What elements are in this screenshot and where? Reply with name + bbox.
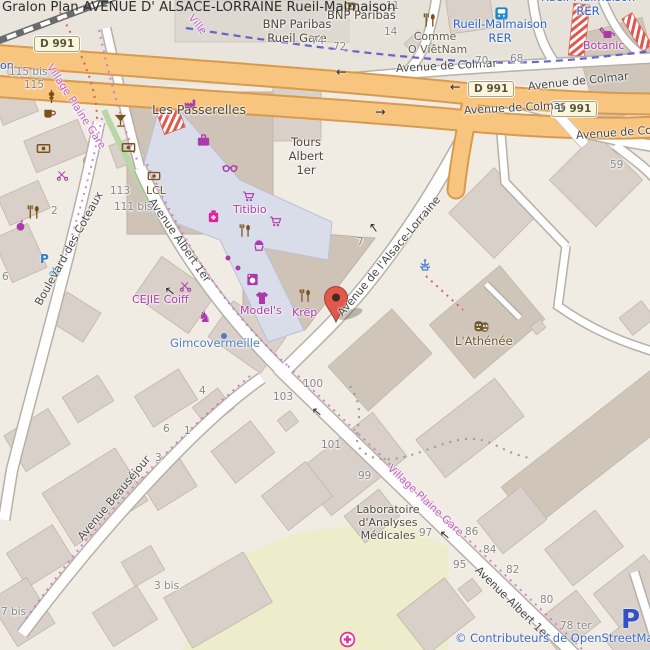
house-number: 99 — [358, 470, 371, 483]
house-number: 6 — [2, 271, 9, 284]
poi-label-titibio: Titibio — [233, 203, 267, 216]
house-number: 101 — [321, 439, 341, 452]
bicycle-parking-label: P — [40, 252, 49, 266]
oneway-arrow: ← — [450, 79, 460, 94]
poi-dot — [236, 266, 241, 271]
page-title: Gralon Plan AVENUE D' ALSACE-LORRAINE Ru… — [2, 0, 396, 15]
house-number: 113 — [110, 185, 130, 198]
poi-label-lab-line2: d'Analyses — [350, 516, 426, 529]
house-number: 70 — [475, 55, 488, 68]
house-number: 84 — [483, 544, 496, 557]
station-label-line1: Rueil-Malmaison — [452, 18, 548, 32]
house-number: 103 — [273, 391, 293, 404]
oneway-arrow: → — [375, 104, 385, 119]
house-number: 7 — [357, 236, 364, 249]
poi-dot — [226, 256, 231, 261]
poi-label-les-passerelles: Les Passerelles — [152, 102, 246, 117]
map-base-layer — [0, 0, 650, 650]
poi-label-cejie-coiff: CEJIE Coiff — [132, 293, 189, 306]
station-label-partial-line2: RER — [540, 5, 636, 19]
house-number: 86 — [465, 526, 478, 539]
poi-label-athenee: L'Athénée — [455, 335, 513, 349]
house-number: 1 — [184, 425, 191, 438]
house-number: 80 — [540, 594, 553, 607]
house-number: 59 — [610, 159, 623, 172]
poi-label-lcl: LCL — [146, 184, 166, 197]
laundry-icon — [247, 274, 257, 285]
map-canvas[interactable]: D 991 D 991 D 991 Avenue de Colmar Avenu… — [0, 0, 650, 650]
house-number: 6 — [163, 423, 170, 436]
poi-label-lab-line1: Laboratoire — [350, 503, 426, 516]
house-number: 115 — [24, 79, 44, 92]
road-shield-d991: D 991 — [468, 81, 514, 97]
house-number: 3 bis — [154, 580, 179, 593]
poi-label-gimcovermeille: Gimcovermeille — [170, 337, 260, 351]
poi-label-models: Model's — [240, 304, 282, 317]
house-number: 74 — [311, 35, 324, 48]
house-number: 95 — [453, 559, 466, 572]
poi-label-bnp-gare-line2: Rueil Gare — [252, 32, 342, 46]
clinic-icon — [341, 633, 355, 647]
house-number: 3 — [155, 452, 162, 465]
theatre-icon — [475, 321, 489, 332]
house-number: 82 — [506, 564, 519, 577]
oneway-arrow: ← — [336, 64, 346, 79]
osm-attribution-link[interactable]: © Contributeurs de OpenStreetMap — [455, 631, 650, 645]
toy-shop-icon: ♞ — [198, 308, 211, 326]
poi-label-lab-line3: Médicales — [350, 529, 426, 542]
house-number: 7 bis — [1, 606, 26, 619]
road-shield-d991: D 991 — [34, 36, 80, 52]
house-number: 68 — [510, 53, 523, 66]
poi-label-tours-line1: Tours — [278, 136, 334, 150]
poi-label-botanic: Botanic — [583, 39, 624, 52]
house-number: 2 — [51, 205, 58, 218]
poi-label-tours-line3: 1er — [278, 164, 334, 178]
marker-pin-center — [332, 294, 340, 302]
poi-label-krep: Krëp — [292, 306, 317, 319]
house-number: 115 bis — [9, 66, 47, 79]
house-number: 4 — [199, 385, 206, 398]
house-number: 14 — [384, 26, 397, 39]
house-number: 72 — [333, 41, 346, 54]
house-number: 100 — [303, 378, 323, 391]
house-number: 97 — [419, 527, 432, 540]
poi-label-bnp-gare-line1: BNP Paribas — [252, 18, 342, 32]
poi-label-tours-line2: Albert — [278, 150, 334, 164]
station-label-line2: RER — [452, 32, 548, 46]
house-number: 111 bis — [114, 201, 152, 214]
